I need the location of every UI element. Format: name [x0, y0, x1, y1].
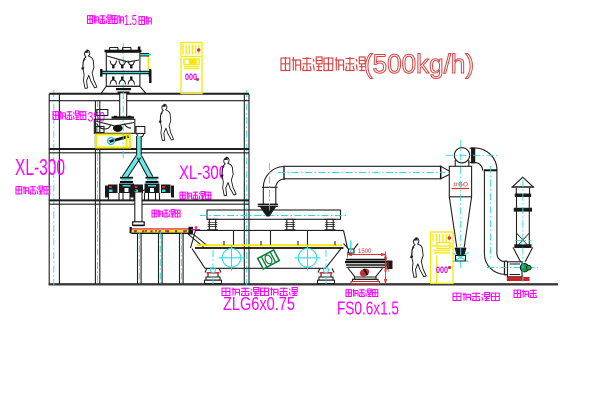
svg-text:000: 000: [185, 72, 197, 82]
svg-text:1500: 1500: [358, 249, 372, 255]
svg-text:1.5: 1.5: [124, 13, 137, 29]
svg-text:ZLG6x0.75: ZLG6x0.75: [223, 294, 295, 314]
svg-text:XL-300: XL-300: [179, 163, 227, 184]
svg-text:XL-300: XL-300: [15, 154, 65, 180]
svg-text:FS0.6x1.5: FS0.6x1.5: [337, 299, 399, 319]
svg-text:000: 000: [436, 265, 448, 276]
svg-text:(500kg/h): (500kg/h): [364, 49, 474, 79]
svg-text:500: 500: [385, 261, 391, 272]
